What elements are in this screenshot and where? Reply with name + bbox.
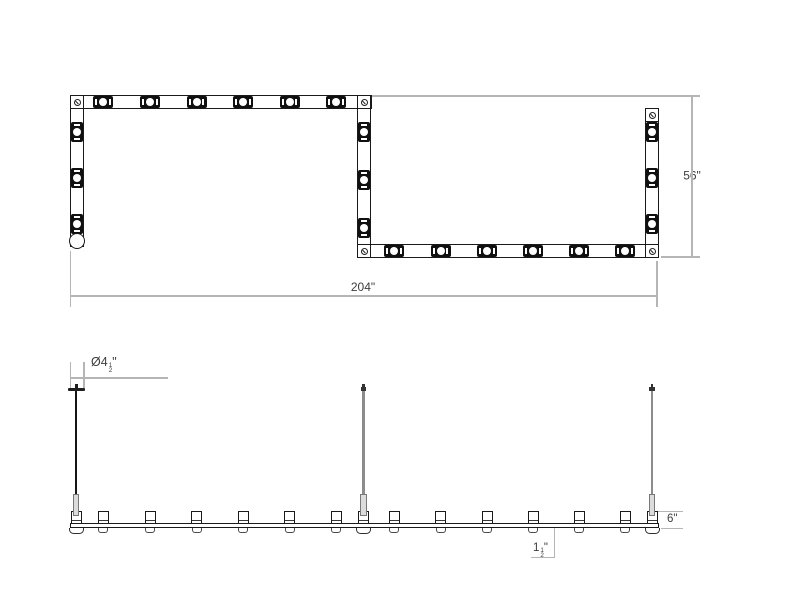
module-bracket (649, 170, 656, 172)
led-module (384, 245, 404, 257)
module-lens (286, 98, 294, 106)
inch-mark: " (544, 542, 548, 554)
dimension-line (70, 377, 168, 379)
module-lens (146, 98, 154, 106)
module-bracket (525, 248, 527, 255)
module-lens (99, 98, 107, 106)
lamp-cylinder (482, 511, 493, 524)
module-bracket (95, 99, 97, 106)
lamp-cylinder (284, 511, 295, 524)
led-module (358, 122, 370, 142)
stem-turnbuckle (360, 494, 366, 516)
corner-screw-icon (361, 248, 368, 255)
extension-line (70, 251, 72, 307)
module-bracket (433, 248, 435, 255)
dim-whole: 1 (533, 542, 539, 554)
module-bracket (74, 124, 81, 126)
module-bracket (617, 248, 619, 255)
lamp-cylinder (389, 511, 400, 524)
lamp-cap (145, 528, 155, 533)
stem-turnbuckle (73, 494, 79, 516)
led-module (358, 218, 370, 238)
canopy-diameter-label: Ø412" (91, 356, 117, 374)
module-bracket (571, 248, 573, 255)
module-bracket (361, 220, 368, 222)
led-module (140, 96, 160, 108)
junction-end-cap (645, 528, 660, 534)
cable-gripper (649, 387, 655, 391)
module-lens (360, 176, 368, 184)
module-bracket (361, 172, 368, 174)
module-bracket (446, 248, 448, 255)
module-lens (437, 247, 445, 255)
module-lens (648, 174, 656, 182)
led-module (431, 245, 451, 257)
dimension-line (691, 95, 693, 257)
led-module (71, 122, 83, 142)
led-module (569, 245, 589, 257)
module-lens (360, 224, 368, 232)
module-bracket (649, 124, 656, 126)
module-lens (332, 98, 340, 106)
corner-screw-icon (649, 112, 656, 119)
pendant-stem (75, 391, 78, 494)
corner-screw-icon (361, 99, 368, 106)
lamp-cylinder (191, 511, 202, 524)
power-feed-circle (69, 233, 85, 249)
module-bracket (282, 99, 284, 106)
fixture-height-label: 6" (667, 513, 677, 526)
diameter-symbol: Ø (91, 355, 101, 369)
module-lens (239, 98, 247, 106)
module-bracket (235, 99, 237, 106)
module-lens (621, 247, 629, 255)
lamp-cylinder (528, 511, 539, 524)
extension-line (656, 261, 658, 307)
lamp-cylinder (238, 511, 249, 524)
lamp-cap (192, 528, 202, 533)
module-bracket (189, 99, 191, 106)
lamp-cap (528, 528, 538, 533)
drawing-canvas: 56" 204" Ø412" 6" 112" (0, 0, 792, 612)
led-module (646, 214, 658, 234)
lamp-cap (389, 528, 399, 533)
corner-screw-icon (74, 99, 81, 106)
corner-screw-icon (649, 248, 656, 255)
module-lens (73, 128, 81, 136)
led-module (71, 168, 83, 188)
module-bracket (156, 99, 158, 106)
module-lens (360, 128, 368, 136)
fraction-denominator: 2 (109, 368, 113, 373)
module-lens (73, 220, 81, 228)
junction-end-cap (69, 528, 84, 534)
lamp-cylinder (98, 511, 109, 524)
module-lens (648, 220, 656, 228)
pendant-stem (651, 391, 653, 495)
cable-gripper (361, 387, 367, 391)
module-bracket (361, 234, 368, 236)
module-bracket (295, 99, 297, 106)
module-bracket (142, 99, 144, 106)
lamp-cap (98, 528, 108, 533)
led-module (477, 245, 497, 257)
junction-end-cap (356, 528, 371, 534)
module-bracket (585, 248, 587, 255)
extension-line (661, 528, 683, 530)
module-lens (483, 247, 491, 255)
pendant-stem (362, 391, 364, 495)
extension-line (554, 528, 556, 558)
module-bracket (479, 248, 481, 255)
module-bracket (361, 138, 368, 140)
lamp-cylinder (620, 511, 631, 524)
module-bracket (649, 138, 656, 140)
led-module (326, 96, 346, 108)
module-bracket (74, 170, 81, 172)
stem-turnbuckle (649, 494, 655, 516)
module-bracket (361, 186, 368, 188)
lamp-cap (238, 528, 248, 533)
module-lens (648, 128, 656, 136)
lamp-cylinder (435, 511, 446, 524)
module-bracket (400, 248, 402, 255)
lamp-cylinder (331, 511, 342, 524)
module-lens (390, 247, 398, 255)
led-module (233, 96, 253, 108)
module-bracket (328, 99, 330, 106)
led-module (71, 214, 83, 234)
width-dimension-label: 204" (351, 281, 375, 294)
lamp-cylinder (145, 511, 156, 524)
led-module (358, 170, 370, 190)
lamp-cap (620, 528, 630, 533)
module-bracket (109, 99, 111, 106)
module-bracket (386, 248, 388, 255)
lamp-cap (436, 528, 446, 533)
module-bracket (361, 124, 368, 126)
led-module (523, 245, 543, 257)
extension-line (372, 95, 700, 97)
led-module (187, 96, 207, 108)
module-bracket (649, 184, 656, 186)
module-bracket (74, 184, 81, 186)
lamp-cap (285, 528, 295, 533)
module-bracket (249, 99, 251, 106)
led-module (646, 122, 658, 142)
lamp-cylinder (574, 511, 585, 524)
dim-whole: 4 (101, 355, 108, 369)
inch-mark: " (112, 355, 116, 369)
lamp-cap (331, 528, 341, 533)
module-lens (575, 247, 583, 255)
led-module (93, 96, 113, 108)
module-lens (193, 98, 201, 106)
dimension-line (531, 557, 555, 559)
module-bracket (74, 138, 81, 140)
extension-line (661, 256, 700, 258)
module-bracket (342, 99, 344, 106)
module-bracket (74, 216, 81, 218)
extension-tick (70, 362, 72, 388)
module-bracket (649, 216, 656, 218)
led-module (280, 96, 300, 108)
module-bracket (539, 248, 541, 255)
ceiling-canopy (68, 388, 85, 392)
module-bracket (631, 248, 633, 255)
module-bracket (493, 248, 495, 255)
module-bracket (74, 230, 81, 232)
module-lens (529, 247, 537, 255)
module-bracket (649, 230, 656, 232)
dimension-line (70, 295, 657, 297)
extension-line (658, 511, 683, 513)
module-bracket (202, 99, 204, 106)
lamp-cap (482, 528, 492, 533)
extension-tick (83, 362, 85, 388)
led-module (646, 168, 658, 188)
led-module (615, 245, 635, 257)
lamp-cap (574, 528, 584, 533)
module-lens (73, 174, 81, 182)
